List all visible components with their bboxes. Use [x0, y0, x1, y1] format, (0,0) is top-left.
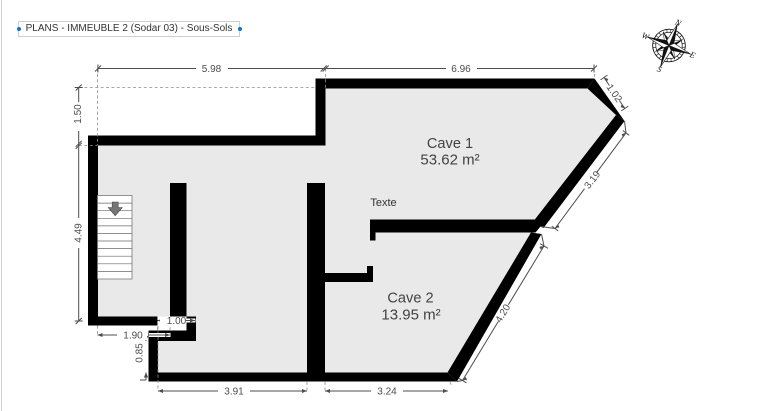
- svg-text:3.24: 3.24: [377, 387, 397, 398]
- svg-text:Cave 2: Cave 2: [387, 291, 433, 307]
- svg-text:13.95 m²: 13.95 m²: [381, 307, 440, 324]
- svg-text:1.90: 1.90: [123, 331, 143, 342]
- svg-text:0.85: 0.85: [135, 343, 146, 363]
- svg-text:1.50: 1.50: [73, 104, 84, 124]
- svg-text:E: E: [688, 49, 698, 61]
- svg-text:3.19: 3.19: [583, 169, 604, 191]
- svg-text:N: N: [673, 16, 684, 28]
- svg-text:W: W: [640, 30, 651, 42]
- svg-text:S: S: [656, 64, 664, 75]
- svg-text:5.98: 5.98: [202, 64, 222, 75]
- svg-text:6.96: 6.96: [451, 64, 471, 75]
- svg-text:3.91: 3.91: [224, 387, 244, 398]
- svg-text:4.49: 4.49: [74, 223, 85, 243]
- svg-text:Cave 1: Cave 1: [427, 136, 473, 152]
- svg-text:53.62 m²: 53.62 m²: [420, 152, 479, 169]
- svg-text:1.00: 1.00: [167, 316, 187, 327]
- svg-text:Texte: Texte: [370, 197, 396, 209]
